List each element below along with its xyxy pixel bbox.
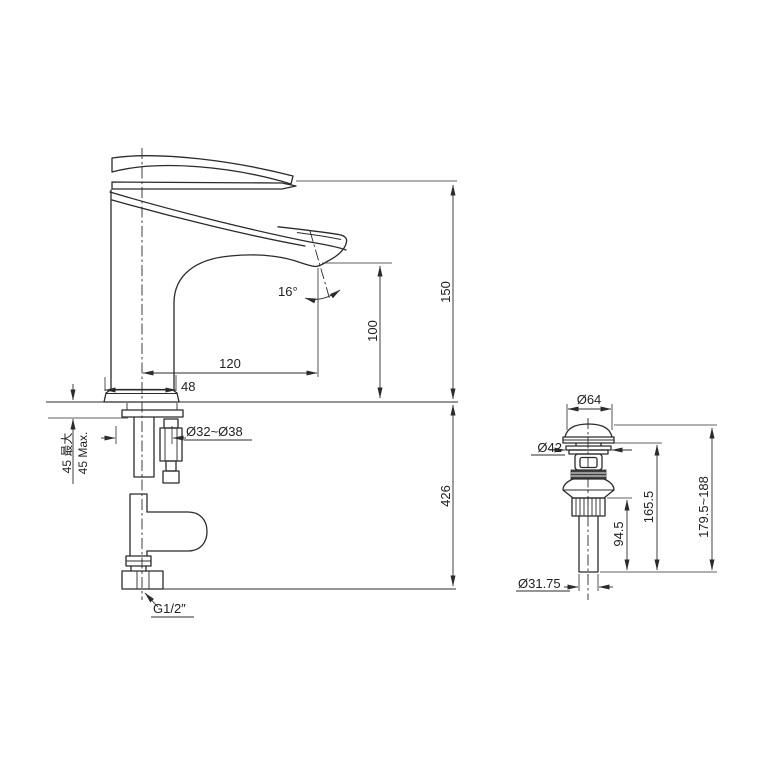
drain-dimensions: Ø64 Ø42 94.5 165.5 179.5~188 Ø31.75 [516, 392, 717, 591]
faucet-handle [112, 156, 293, 184]
faucet-handle-base-plate [112, 182, 296, 189]
dim-deck-thickness-en-text: 45 Max. [76, 432, 90, 475]
mounting-stud-foot [163, 471, 179, 483]
faucet-spout-under-curve [174, 255, 327, 389]
technical-drawing-canvas: 150 100 120 48 16° 45 最大 45 Max. Ø32~Ø38… [0, 0, 768, 768]
faucet-dimensions: 150 100 120 48 16° 45 最大 45 Max. Ø32~Ø38… [60, 181, 457, 617]
faucet-base [104, 390, 179, 403]
dim-cap-diameter-text: Ø64 [577, 392, 602, 407]
inlet-hex-nut [122, 571, 163, 589]
dim-tail-diameter-text: Ø31.75 [518, 576, 561, 591]
shank-tube [134, 417, 154, 477]
drain-cap-dome [565, 424, 612, 437]
dim-mounting-hole-text: Ø32~Ø38 [186, 424, 243, 439]
faucet-spout-tip [278, 227, 347, 262]
dim-outlet-height-text: 100 [365, 320, 380, 342]
dim-deck-thickness-cn-text: 45 最大 [60, 433, 74, 474]
drain-side-view [563, 418, 614, 600]
mounting-stud-stem-top [164, 419, 178, 428]
dim-spout-reach-text: 120 [219, 356, 241, 371]
mounting-stud-nut [160, 428, 182, 461]
dim-spout-height-text: 150 [438, 281, 453, 303]
dim-outlet-angle-arc [305, 290, 340, 299]
inlet-hex-nut-facets [137, 571, 149, 589]
drain-thread-lines [576, 498, 600, 516]
supply-tube [130, 494, 147, 556]
faucet-side-view [46, 148, 458, 600]
dim-overall-length-text: 179.5~188 [696, 476, 711, 538]
dim-outlet-angle-text: 16° [278, 284, 298, 299]
dim-below-deck-text: 426 [438, 485, 453, 507]
faucet-body-inner-curve [112, 200, 305, 246]
mounting-stud-nut-facets [165, 428, 177, 461]
drain-overflow-hole [580, 458, 597, 468]
faucet-body-top-curve [110, 192, 346, 250]
technical-drawing-page: 150 100 120 48 16° 45 最大 45 Max. Ø32~Ø38… [0, 0, 768, 768]
drain-seal-band [571, 470, 606, 479]
mounting-washer [122, 410, 183, 417]
dim-body-length-text: 165.5 [641, 491, 656, 524]
dim-inlet-thread-text: G1/2″ [153, 601, 186, 616]
drain-cone [563, 479, 614, 498]
drain-tailpipe [579, 516, 598, 572]
hose-neck [131, 566, 146, 571]
dim-base-width-text: 48 [181, 379, 195, 394]
dim-tail-length-text: 94.5 [611, 521, 626, 546]
mounting-stud-stem-bottom [166, 461, 176, 471]
dim-flange-diameter-text: Ø42 [537, 440, 562, 455]
outlet-axis-centerline [310, 231, 330, 300]
supply-hose-loop [147, 512, 207, 551]
